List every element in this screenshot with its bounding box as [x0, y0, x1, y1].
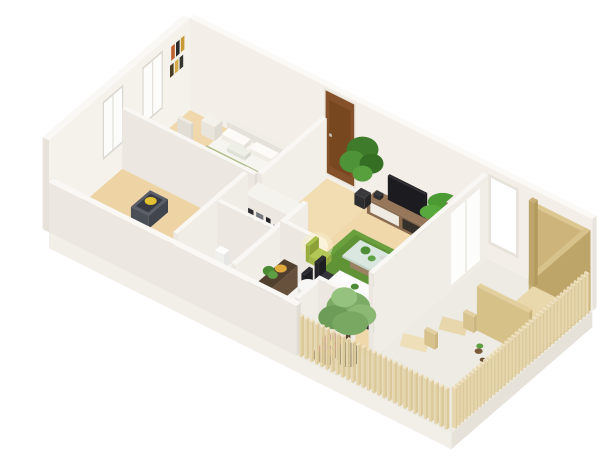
terrace-pot-1: [475, 348, 483, 354]
fruit-bowl: [275, 265, 287, 273]
window-bar-1: [152, 61, 153, 116]
coffee-table-plant-2: [368, 255, 376, 261]
floorplan-render: [0, 0, 600, 467]
terrace-door-frame: [465, 200, 466, 273]
window-bar-2: [112, 95, 113, 150]
plate-1: [341, 276, 350, 282]
shed-post: [529, 197, 538, 287]
coffee-table-plant-1: [361, 246, 371, 254]
table-centerpiece: [351, 284, 359, 290]
baby-rocker-toy: [145, 197, 157, 205]
terrace-pot-plant: [476, 344, 483, 349]
terrace-window-glass: [491, 178, 516, 255]
apartment-3d-floorplan: [0, 0, 600, 467]
